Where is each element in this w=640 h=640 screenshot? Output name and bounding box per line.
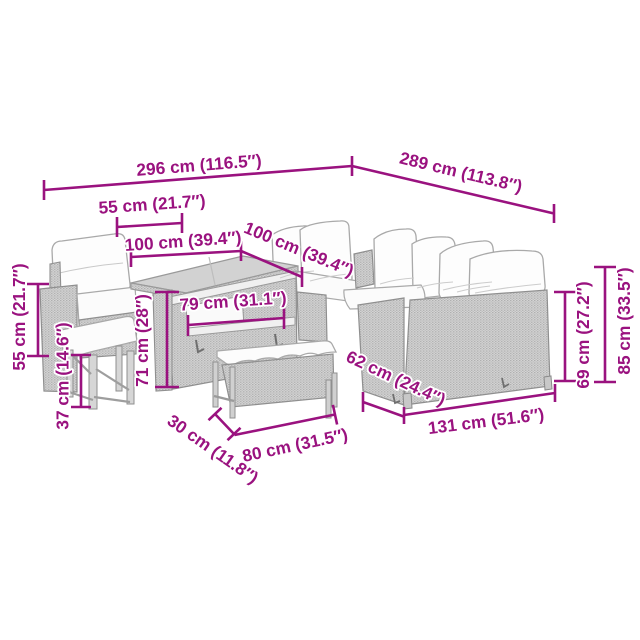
svg-text:37 cm (14.6″): 37 cm (14.6″) (53, 322, 73, 429)
svg-text:71 cm (28″): 71 cm (28″) (132, 294, 152, 387)
svg-text:55 cm (21.7″): 55 cm (21.7″) (9, 263, 29, 370)
svg-text:85 cm (33.5″): 85 cm (33.5″) (614, 267, 634, 374)
svg-text:69 cm (27.2″): 69 cm (27.2″) (573, 281, 593, 388)
